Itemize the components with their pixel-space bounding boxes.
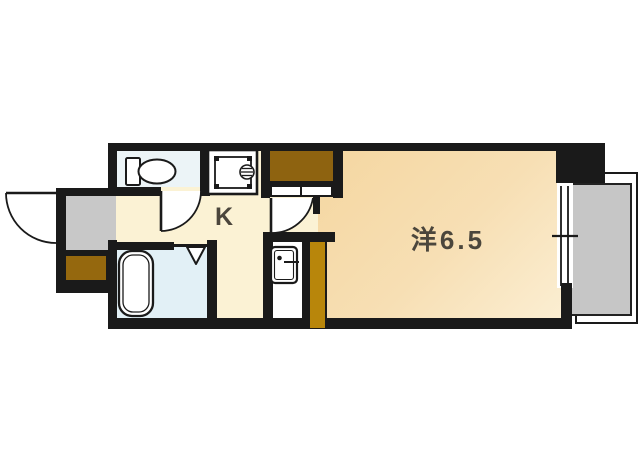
entrance-door-swing-icon bbox=[6, 193, 56, 243]
main-room-label: 洋6.5 bbox=[388, 220, 508, 257]
window-icon bbox=[552, 186, 578, 286]
room-door-swing-icon bbox=[271, 198, 313, 233]
toilet-icon bbox=[126, 158, 176, 185]
kitchen-label: K bbox=[204, 203, 244, 232]
fixtures-layer bbox=[0, 0, 640, 450]
toilet-door-swing-icon bbox=[161, 191, 201, 231]
folding-door-icon bbox=[187, 247, 205, 264]
refrigerator-icon bbox=[271, 247, 299, 283]
floor-plan: K 洋6.5 bbox=[0, 0, 640, 450]
bathtub-icon bbox=[119, 251, 153, 316]
kitchen-sink-stove-icon bbox=[208, 150, 257, 194]
